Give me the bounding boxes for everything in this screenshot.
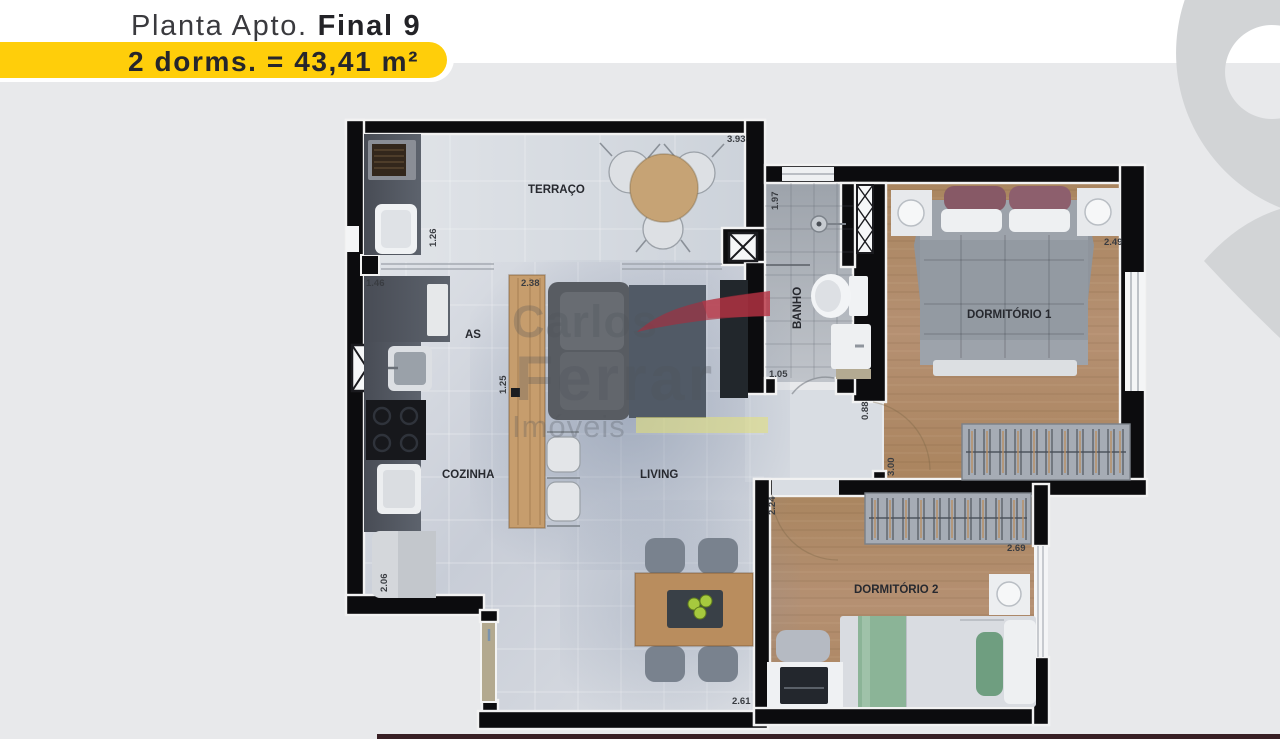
svg-text:2.06: 2.06 bbox=[379, 574, 390, 593]
svg-text:BANHO: BANHO bbox=[792, 287, 804, 329]
svg-text:Imóveis: Imóveis bbox=[512, 409, 626, 444]
svg-text:1.26: 1.26 bbox=[428, 229, 439, 248]
svg-text:Carlos: Carlos bbox=[512, 296, 658, 347]
svg-text:1.25: 1.25 bbox=[498, 375, 509, 394]
svg-text:3.00: 3.00 bbox=[886, 458, 897, 477]
svg-text:DORMITÓRIO 2: DORMITÓRIO 2 bbox=[854, 583, 938, 596]
svg-text:DORMITÓRIO 1: DORMITÓRIO 1 bbox=[967, 308, 1052, 321]
svg-text:COZINHA: COZINHA bbox=[442, 469, 494, 481]
svg-text:Ferrar: Ferrar bbox=[515, 344, 715, 414]
svg-text:0.88: 0.88 bbox=[860, 402, 871, 421]
svg-text:LIVING: LIVING bbox=[640, 469, 678, 481]
svg-text:1.97: 1.97 bbox=[770, 192, 781, 211]
svg-text:2.69: 2.69 bbox=[1007, 543, 1026, 554]
svg-text:2.49: 2.49 bbox=[1104, 237, 1123, 248]
svg-text:1.46: 1.46 bbox=[366, 278, 385, 289]
svg-text:3.93: 3.93 bbox=[727, 134, 746, 145]
svg-text:2.24: 2.24 bbox=[767, 496, 778, 515]
svg-text:2.38: 2.38 bbox=[521, 278, 540, 289]
svg-text:AS: AS bbox=[465, 329, 481, 341]
svg-text:2.61: 2.61 bbox=[732, 696, 751, 707]
svg-text:TERRAÇO: TERRAÇO bbox=[528, 184, 585, 196]
svg-text:1.05: 1.05 bbox=[769, 369, 788, 380]
